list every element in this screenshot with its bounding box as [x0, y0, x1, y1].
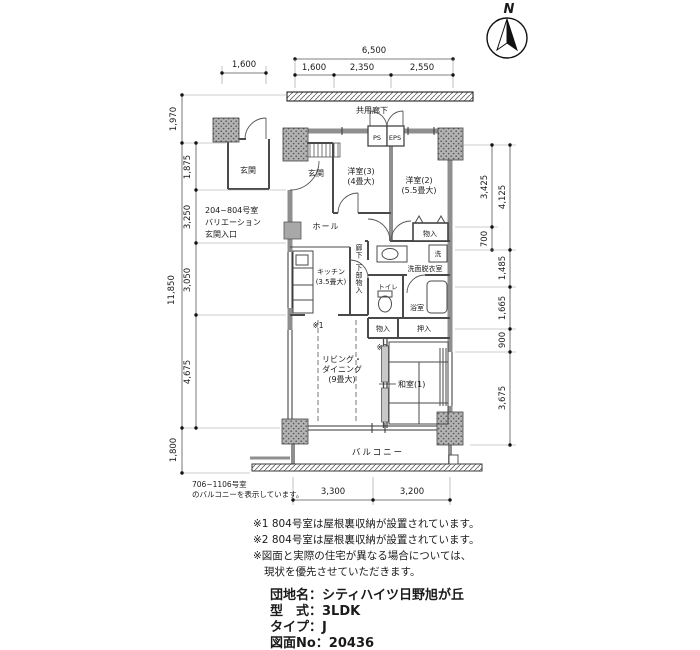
variation-note-line2: バリエーション: [205, 218, 261, 227]
washer-label: 洗: [435, 249, 442, 258]
title-complex-name: 団地名：シティハイツ日野旭が丘: [270, 587, 464, 603]
western2-name: 洋室(2): [405, 175, 432, 185]
variation-note-line3: 玄関入口: [205, 229, 237, 239]
japanese1-label: 和室(1): [398, 379, 425, 389]
dim-bottom-3300: 3,300: [321, 487, 345, 497]
dim-bottom-3200: 3,200: [400, 487, 424, 497]
dim-right-1665: 1,665: [498, 296, 508, 320]
balcony-note-line2: のバルコニーを表示しています。: [192, 489, 303, 499]
floor-plan-page: N 共用廊下 バルコニー: [0, 0, 700, 650]
dim-left-1800: 1,800: [169, 438, 179, 462]
balcony-note-line1: 706~1106号室: [192, 479, 247, 489]
title-block: 団地名：シティハイツ日野旭が丘 型 式：3LDK タイプ：J 図面No：2043…: [270, 587, 464, 650]
dim-left-4675: 4,675: [183, 360, 193, 384]
common-corridor: 共用廊下: [287, 92, 473, 115]
note-line-4: 現状を優先させていただきます。: [264, 565, 420, 578]
balcony: バルコニー: [250, 443, 482, 471]
north-arrow: N: [487, 2, 527, 58]
note-line-1: ※1 804号室は屋根裏収納が設置されています。: [253, 517, 480, 530]
living-size: (9畳大): [328, 374, 355, 384]
dim-top-total: 6,500: [362, 46, 386, 56]
living-line2: ダイニング: [322, 364, 362, 374]
title-drawing-no: 図面No：20436: [270, 636, 374, 650]
variation-entrance: 玄関 204~804号室 バリエーション 玄関入口: [205, 118, 269, 239]
inner-corridor: 廊下 下部物入: [350, 241, 368, 315]
western3-size: (4畳大): [347, 176, 374, 186]
bathroom-label: 浴室: [410, 303, 424, 312]
corridor-vertical-label: 廊下: [355, 243, 363, 259]
living-dining: ※1 リビング・ ダイニング (9畳大): [290, 315, 368, 424]
kitchen: キッチン (3.5畳大): [290, 247, 350, 315]
pipe-spaces: PS EPS: [368, 111, 404, 146]
corridor-label: 共用廊下: [356, 105, 388, 115]
kitchen-name: キッチン: [317, 268, 345, 276]
dim-right-1485: 1,485: [498, 256, 508, 280]
toilet-label: トイレ: [378, 283, 398, 291]
ps-label: PS: [373, 134, 381, 142]
western2-size: (5.5畳大): [402, 185, 437, 195]
kitchen-size: (3.5畳大): [316, 277, 347, 286]
living-line1: リビング・: [322, 354, 362, 364]
dim-right-4125: 4,125: [498, 185, 508, 209]
hall-label: ホール: [313, 222, 340, 231]
under-storage-label: 下部物入: [355, 264, 363, 294]
variation-genkan-label: 玄関: [240, 165, 256, 175]
western-room-3: 洋室(3) (4畳大): [333, 143, 391, 213]
storage-row: 物入 押入 ※2: [368, 318, 450, 352]
main-genkan-label: 玄関: [308, 168, 324, 178]
dim-right-900: 900: [498, 332, 508, 348]
dim-top-seg3: 2,550: [410, 63, 434, 73]
marker-note1: ※1: [312, 321, 323, 330]
north-label: N: [504, 2, 515, 17]
notes-block: ※1 804号室は屋根裏収納が設置されています。 ※2 804号室は屋根裏収納が…: [253, 517, 480, 578]
dim-top-seg2: 2,350: [350, 63, 374, 73]
dim-entry-width: 1,600: [232, 60, 256, 70]
washroom-label: 洗面脱衣室: [408, 264, 443, 273]
eps-label: EPS: [389, 134, 401, 142]
dim-left-1970: 1,970: [169, 107, 179, 131]
western-room-2: 洋室(2) (5.5畳大) 物入: [365, 175, 450, 241]
dim-left-1875: 1,875: [183, 155, 193, 179]
dim-top-seg1: 1,600: [302, 63, 326, 73]
note-line-3: ※図面と実際の住宅が異なる場合については、: [253, 549, 471, 562]
dim-left-3250: 3,250: [183, 205, 193, 229]
title-plan-type: タイプ：J: [270, 620, 327, 635]
dim-right-3425: 3,425: [480, 175, 490, 199]
floor-plan-drawing: N 共用廊下 バルコニー: [0, 0, 700, 650]
storage-upper-label: 物入: [423, 229, 437, 238]
balcony-note: 706~1106号室 のバルコニーを表示しています。: [192, 479, 303, 499]
western3-name: 洋室(3): [347, 166, 374, 176]
note-line-2: ※2 804号室は屋根裏収納が設置されています。: [253, 533, 480, 546]
toilet-bathroom: トイレ 浴室: [368, 275, 450, 318]
title-type: 型 式：3LDK: [270, 603, 361, 619]
dim-left-3050: 3,050: [183, 268, 193, 292]
oshiire-label: 押入: [417, 324, 431, 333]
dim-right-700: 700: [480, 231, 490, 247]
storage-mid-label: 物入: [376, 324, 390, 333]
dim-left-11850: 11,850: [167, 275, 177, 305]
variation-note-line1: 204~804号室: [205, 205, 258, 215]
dim-right-3675: 3,675: [498, 386, 508, 410]
balcony-label: バルコニー: [352, 448, 404, 458]
